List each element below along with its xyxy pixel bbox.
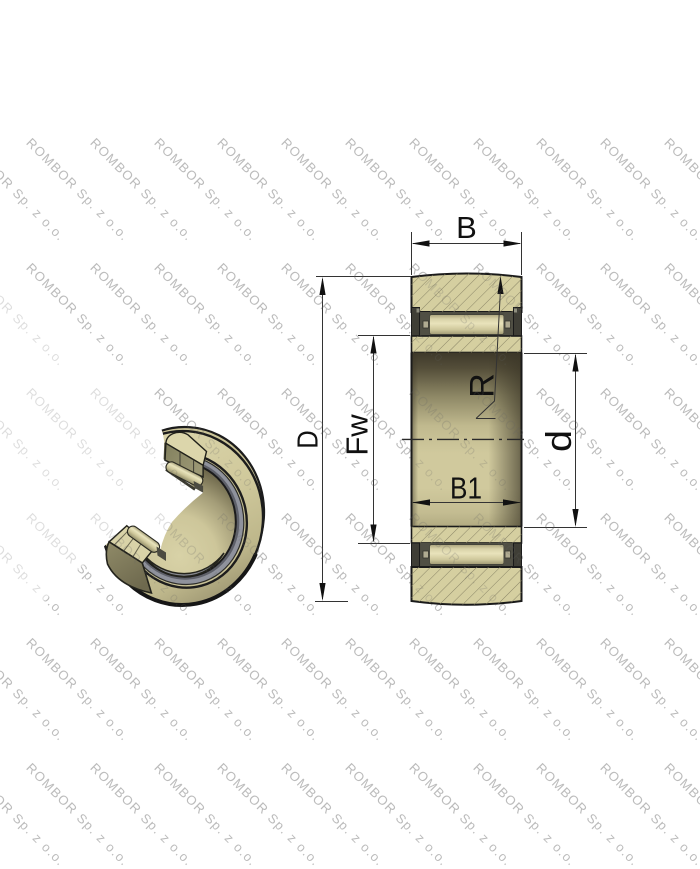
svg-text:B1: B1 xyxy=(450,471,482,506)
svg-text:B: B xyxy=(456,210,477,245)
